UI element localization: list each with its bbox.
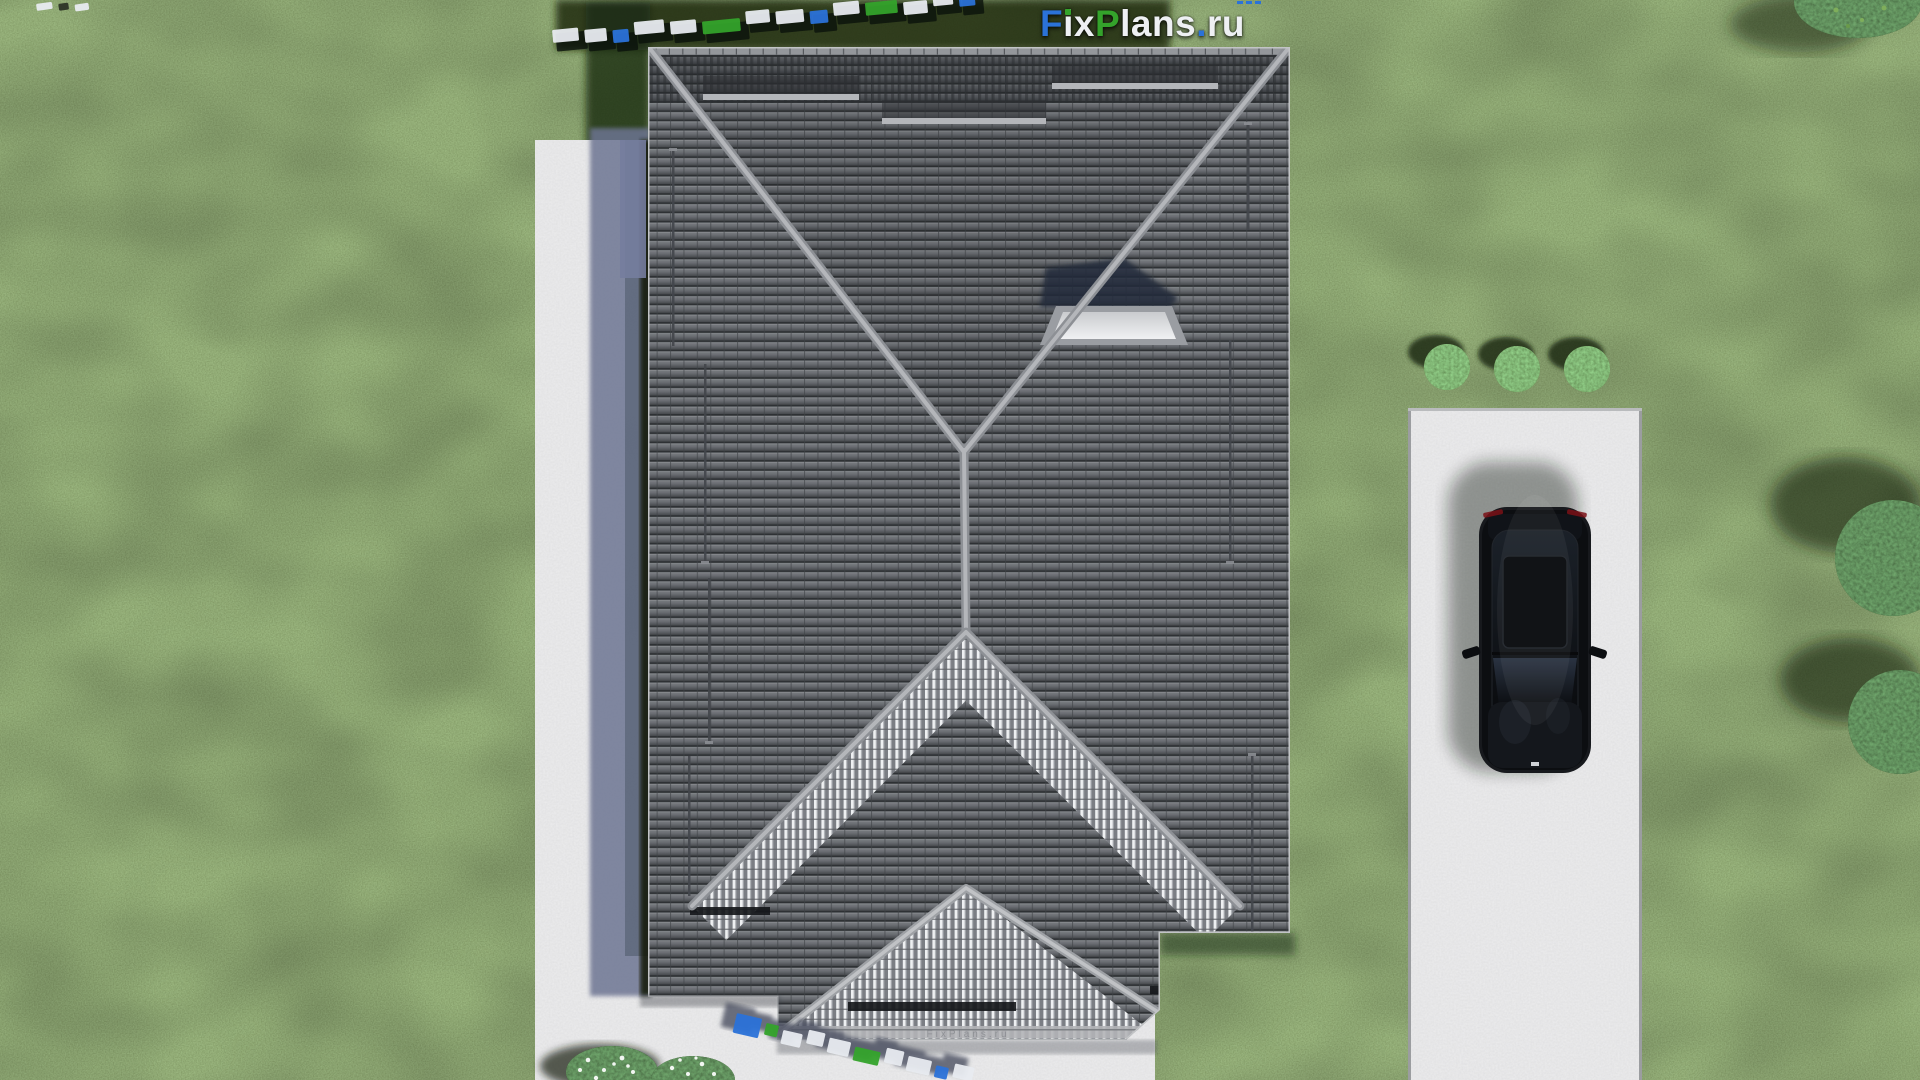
fixplans-logo: FixPlans.ru [1040,3,1245,45]
pergola-panel [620,140,646,278]
logo-letters-ru: ru [1207,3,1245,44]
watermark-block [58,3,69,11]
driveway-bushes [1408,335,1610,392]
watermark-block [809,10,828,25]
logo-letter-f: F [1040,3,1063,44]
driveway-edge-top [1408,408,1642,411]
fascia-watermark-text: FixPlans.ru [926,1029,1009,1040]
roof: FixPlans.ru [648,47,1290,1040]
left-eave-shadow [640,995,780,1007]
logo-letters-lans: lans [1120,3,1196,44]
render-canvas: FixPlans.ru [0,0,1920,1080]
car-roof-highlight [1497,495,1573,725]
watermark-block [670,19,697,34]
logo-letter-p: P [1095,3,1120,44]
logo-dot: . [1196,3,1207,44]
watermark-block [745,9,770,24]
watermark-block [775,9,804,25]
driveway-edge-left [1408,408,1411,1080]
driveway-edge-right [1639,408,1642,1080]
aerial-house-render: FixPlans.ru [0,0,1920,1080]
watermark-block [833,0,860,15]
watermark-block [552,28,579,43]
logo-i-dot [1065,9,1071,15]
watermark-block [612,29,629,43]
logo-letter-x: x [1074,3,1095,44]
watermark-block [903,0,928,15]
watermark-block [584,28,607,43]
logo-ru-ticks [1237,1,1261,4]
car-plate [1531,762,1539,766]
